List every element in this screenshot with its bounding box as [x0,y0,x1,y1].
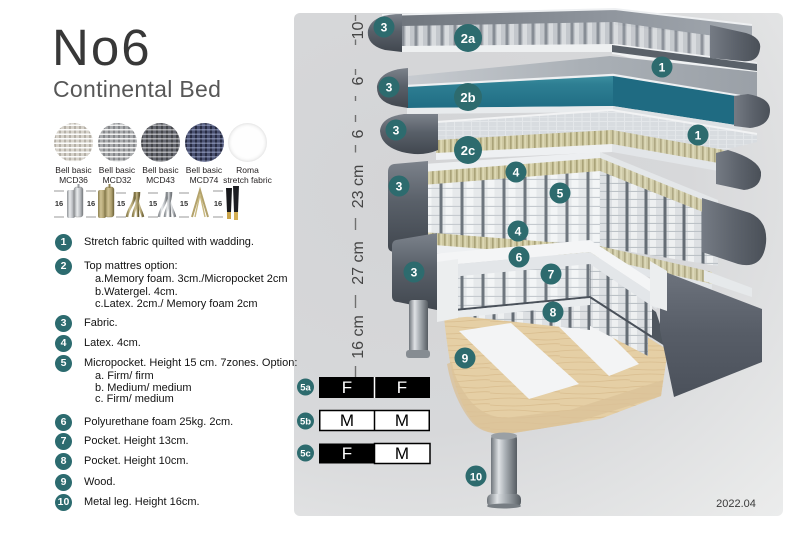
svg-text:6: 6 [516,251,523,265]
svg-text:10: 10 [470,472,482,484]
svg-text:M: M [395,411,409,430]
svg-text:16 cm: 16 cm [350,315,367,359]
svg-text:2022.04: 2022.04 [716,498,756,510]
svg-text:4: 4 [515,225,522,239]
svg-text:F: F [342,444,352,463]
svg-text:5b: 5b [300,417,311,428]
svg-text:10: 10 [350,22,367,40]
svg-text:M: M [395,444,409,463]
svg-text:M: M [340,411,354,430]
svg-text:3: 3 [396,180,403,194]
svg-text:3: 3 [411,266,418,280]
svg-text:8: 8 [550,306,557,320]
svg-text:1: 1 [659,61,666,75]
svg-text:F: F [397,378,407,397]
svg-text:4: 4 [513,166,520,180]
svg-text:3: 3 [381,21,388,35]
svg-text:27 cm: 27 cm [350,241,367,285]
svg-text:3: 3 [393,124,400,138]
svg-text:23 cm: 23 cm [350,165,367,209]
svg-text:F: F [342,378,352,397]
svg-text:5: 5 [557,187,564,201]
svg-text:2c: 2c [461,143,475,158]
svg-text:2b: 2b [460,90,475,105]
svg-text:5c: 5c [300,449,311,460]
svg-text:1: 1 [695,129,702,143]
svg-text:3: 3 [386,81,393,95]
svg-text:5a: 5a [300,383,311,394]
svg-text:6: 6 [350,76,367,85]
svg-text:6: 6 [350,129,367,138]
svg-text:7: 7 [548,268,555,282]
svg-text:9: 9 [462,352,469,366]
svg-text:2a: 2a [461,31,476,46]
